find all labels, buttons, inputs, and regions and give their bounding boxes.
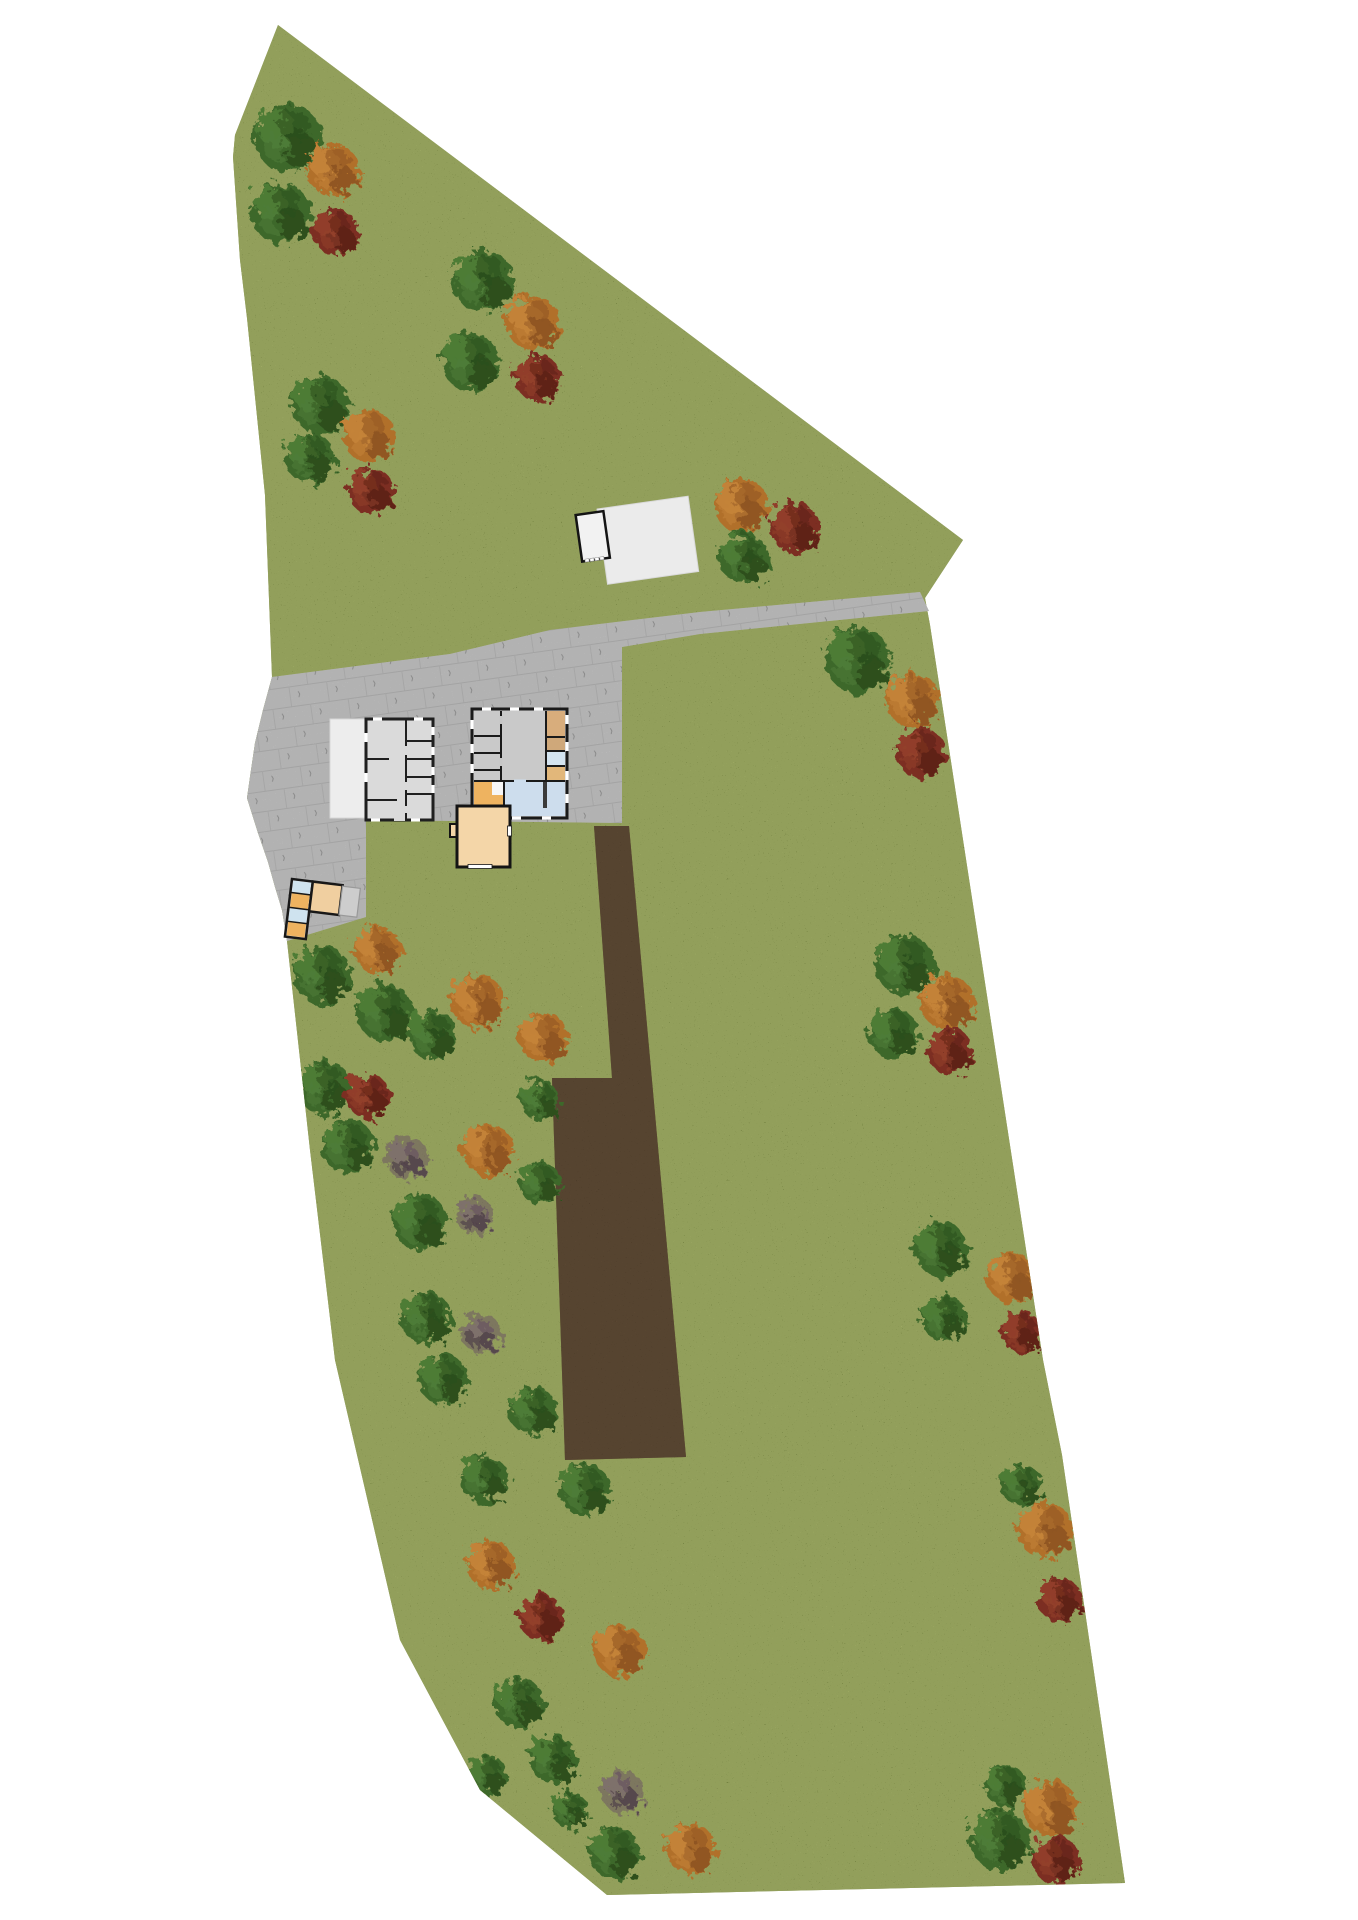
building-barn: [330, 718, 435, 822]
tree-green: [321, 1119, 375, 1173]
tree-orange: [307, 144, 359, 196]
tree-orange: [987, 1253, 1037, 1303]
tree-orange: [666, 1824, 716, 1874]
tree-maroon: [515, 355, 561, 401]
tree-orange: [343, 410, 395, 462]
tree-orange: [462, 1124, 514, 1176]
tree-orange: [1017, 1502, 1073, 1558]
tree-maroon: [518, 1594, 564, 1640]
tree-green: [529, 1735, 577, 1783]
tree-maroon: [1032, 1836, 1080, 1884]
tree-green: [509, 1387, 557, 1435]
tree-green: [285, 433, 335, 483]
tree-green: [552, 1792, 588, 1828]
tree-green: [984, 1764, 1026, 1806]
tree-maroon: [927, 1028, 973, 1074]
tree-maroon: [348, 468, 394, 514]
tree-green: [914, 1222, 968, 1276]
tree-green: [400, 1292, 452, 1344]
tree-green: [467, 1755, 507, 1795]
building-house: [471, 708, 569, 820]
tree-orange: [518, 1012, 568, 1062]
tree-green: [970, 1810, 1030, 1870]
tree-green: [251, 183, 311, 243]
tree-maroon: [313, 209, 359, 255]
tree-green: [452, 250, 514, 312]
tree-green: [520, 1080, 560, 1120]
tree-green: [419, 1355, 469, 1405]
tree-orange: [354, 926, 402, 974]
tree-green: [298, 1061, 352, 1115]
tree-maroon: [770, 503, 820, 553]
tree-orange: [506, 296, 560, 350]
tree-orange: [886, 673, 940, 727]
building-annex: [450, 806, 512, 869]
tree-green: [407, 1009, 457, 1059]
tree-green: [519, 1162, 561, 1204]
tree-maroon: [1001, 1312, 1043, 1354]
tree-dead: [385, 1136, 428, 1179]
tree-green: [291, 375, 349, 433]
tree-green: [494, 1678, 544, 1728]
tree-green: [1001, 1464, 1043, 1506]
tree-orange: [714, 478, 768, 532]
tree-green: [825, 627, 891, 693]
tree-orange: [920, 975, 974, 1029]
tree-dead: [456, 1197, 494, 1235]
tree-orange: [467, 1541, 515, 1589]
tree-green: [869, 1009, 919, 1059]
tree-green: [356, 983, 414, 1041]
tree-green: [460, 1455, 508, 1503]
tree-orange: [594, 1625, 646, 1677]
tree-green: [921, 1295, 967, 1341]
tree-green: [293, 946, 351, 1004]
tree-dead: [461, 1313, 501, 1353]
tree-maroon: [896, 728, 946, 778]
tree-maroon: [1038, 1578, 1082, 1622]
plan-canvas: [0, 0, 1358, 1920]
tree-green: [589, 1827, 641, 1879]
tree-maroon: [346, 1074, 390, 1118]
tree-green: [392, 1194, 448, 1250]
tree-orange: [1022, 1780, 1078, 1836]
tree-green: [719, 533, 769, 583]
site-plan: [0, 0, 1358, 1920]
tree-green: [442, 333, 500, 391]
tree-green: [559, 1464, 611, 1516]
tree-dead: [601, 1770, 644, 1813]
tree-orange: [451, 975, 505, 1029]
